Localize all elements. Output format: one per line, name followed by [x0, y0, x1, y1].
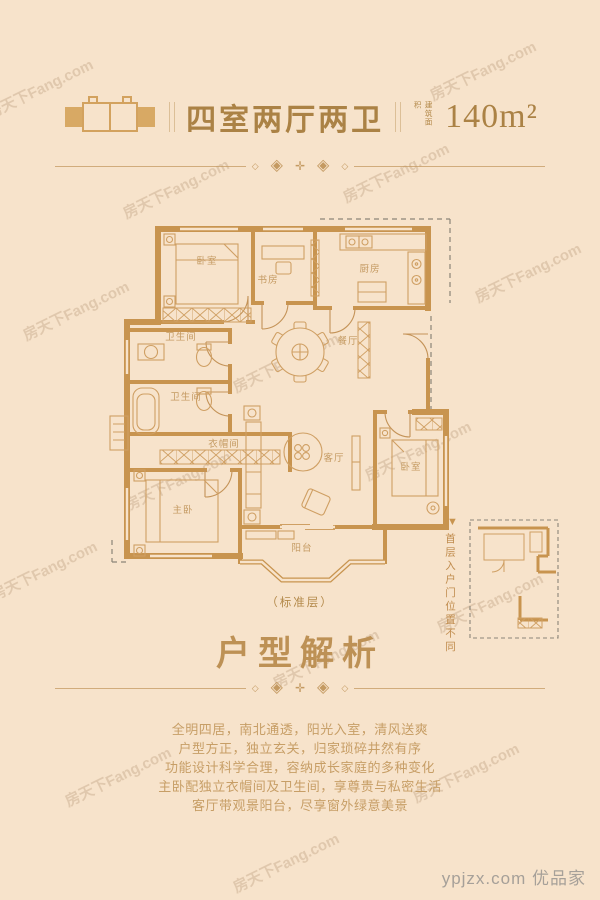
dining-table	[271, 322, 329, 382]
site-credit: ypjzx.com 优品家	[442, 864, 586, 889]
floor-note: （标准层）	[0, 594, 600, 610]
label-study: 书房	[257, 274, 278, 286]
label-bath2: 卫生间	[170, 391, 202, 403]
door-swings	[205, 296, 428, 497]
analysis-line: 客厅带观景阳台，尽享窗外绿意美景	[0, 796, 600, 815]
inset-mini-plan	[470, 520, 558, 638]
boundary-dashed-lines	[112, 219, 450, 562]
analysis-line: 主卧配独立衣帽间及卫生间，享尊贵与私密生活	[0, 777, 600, 796]
label-kitchen: 厨房	[359, 263, 380, 275]
kitchen-counter	[340, 234, 426, 304]
divider-line	[354, 688, 545, 689]
divider-line	[55, 688, 246, 689]
diamond-icon: ◇	[252, 684, 259, 693]
balcony-cabinet	[246, 531, 294, 539]
label-bath1: 卫生间	[165, 331, 197, 343]
analysis-line: 功能设计科学合理，容纳成长家庭的多种变化	[0, 758, 600, 777]
diamond-icon: ◇	[341, 684, 348, 693]
label-bedroom-top: 卧室	[196, 255, 217, 267]
label-cloakroom: 衣帽间	[208, 438, 240, 450]
label-living: 客厅	[323, 452, 344, 464]
analysis-paragraph: 全明四居，南北通透，阳光入室，清风送爽 户型方正，独立玄关，归家琐碎井然有序 功…	[0, 720, 600, 815]
label-bedroom-right: 卧室	[400, 461, 421, 473]
study-desk	[262, 246, 304, 274]
sofa	[244, 406, 261, 524]
ornamental-divider: ◇ ◈ ✛ ◈ ◇	[55, 680, 545, 696]
label-master: 主卧	[172, 504, 193, 516]
down-arrow-icon: ▼	[447, 516, 458, 528]
room-labels: 卧室 书房 厨房 卫生间 卫生间 衣帽间 主卧 餐厅 客厅 卧室 阳台	[165, 255, 421, 554]
bathroom1-fixtures	[138, 344, 212, 367]
tv-console	[352, 436, 360, 490]
analysis-title: 户型解析	[0, 626, 600, 675]
ornament-icon: ◈	[271, 680, 283, 696]
balcony-bay-wall	[240, 562, 385, 580]
cross-icon: ✛	[295, 682, 305, 694]
armchair	[301, 488, 331, 516]
analysis-line: 全明四居，南北通透，阳光入室，清风送爽	[0, 720, 600, 739]
label-balcony: 阳台	[291, 542, 312, 554]
analysis-line: 户型方正，独立玄关，归家琐碎井然有序	[0, 739, 600, 758]
ornament-icon: ◈	[317, 680, 329, 696]
floorplan-page: 房天下Fang.com 房天下Fang.com 房天下Fang.com 房天下F…	[0, 0, 600, 900]
label-dining: 餐厅	[337, 335, 358, 347]
bed-top-left	[164, 234, 238, 307]
